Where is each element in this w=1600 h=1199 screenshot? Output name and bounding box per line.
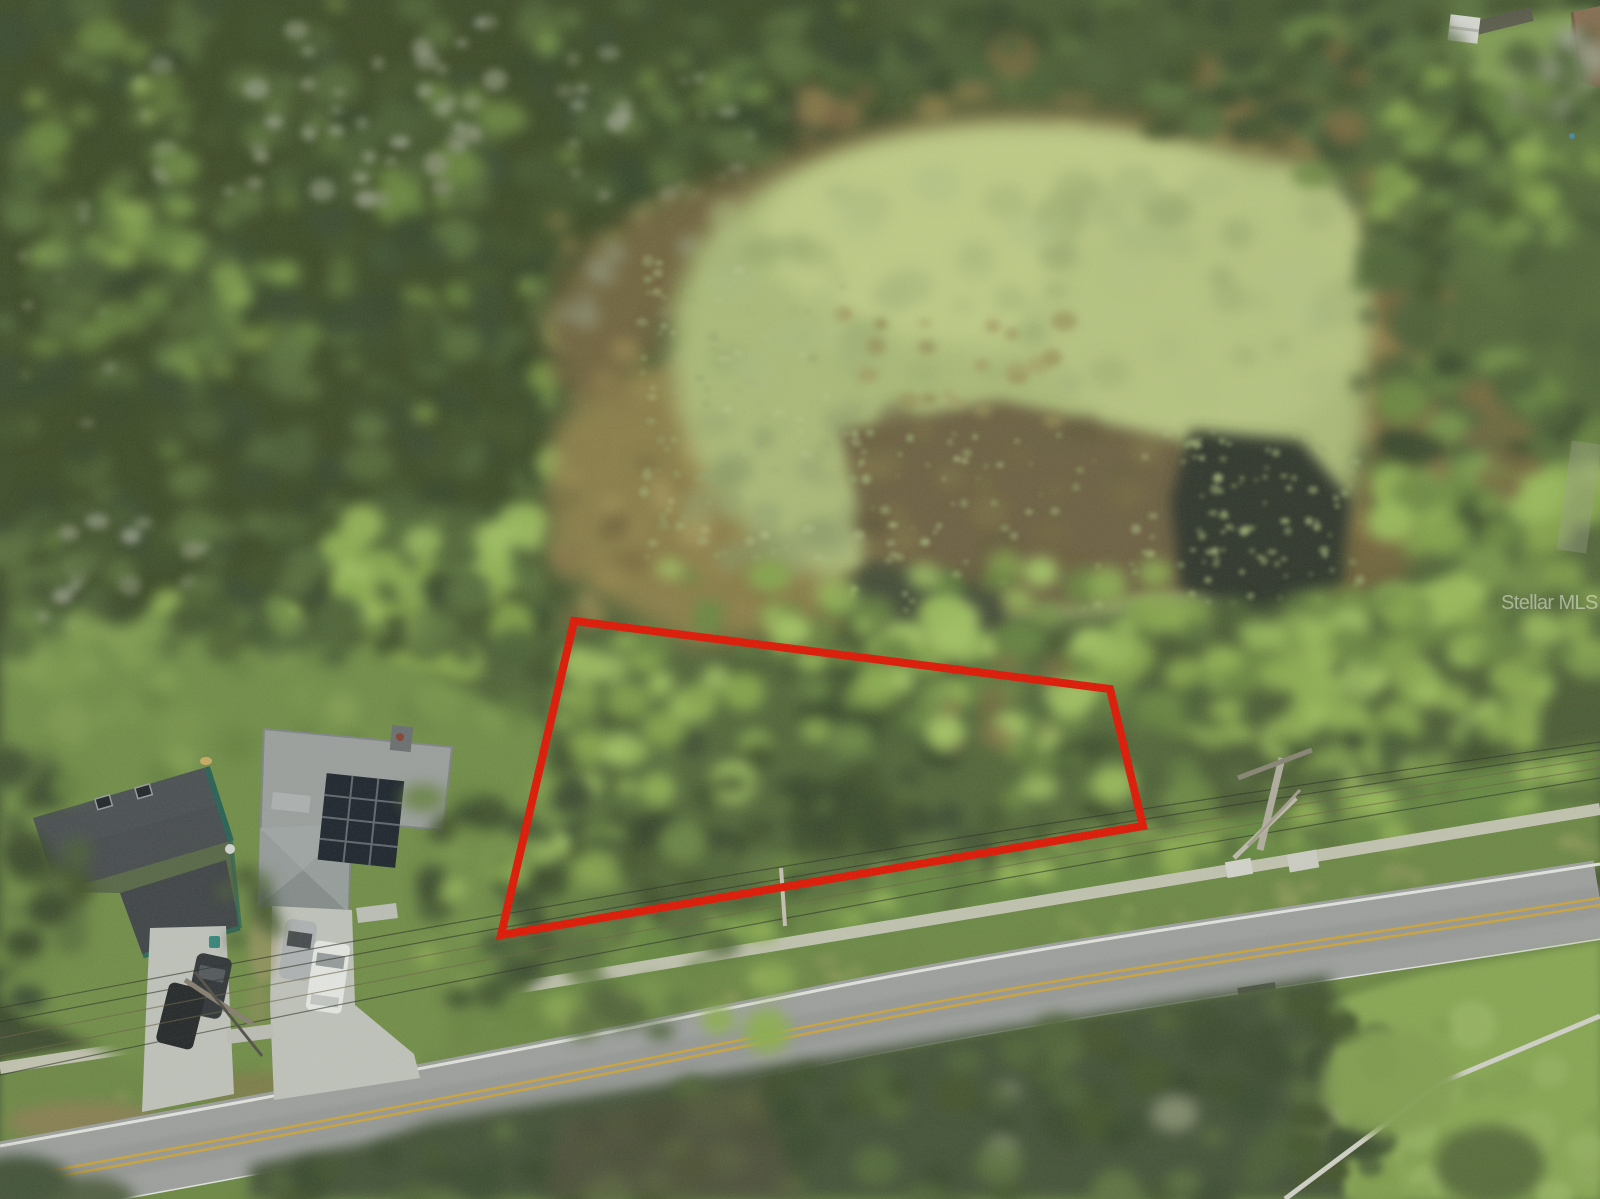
svg-text:Stellar MLS: Stellar MLS — [1501, 592, 1598, 614]
